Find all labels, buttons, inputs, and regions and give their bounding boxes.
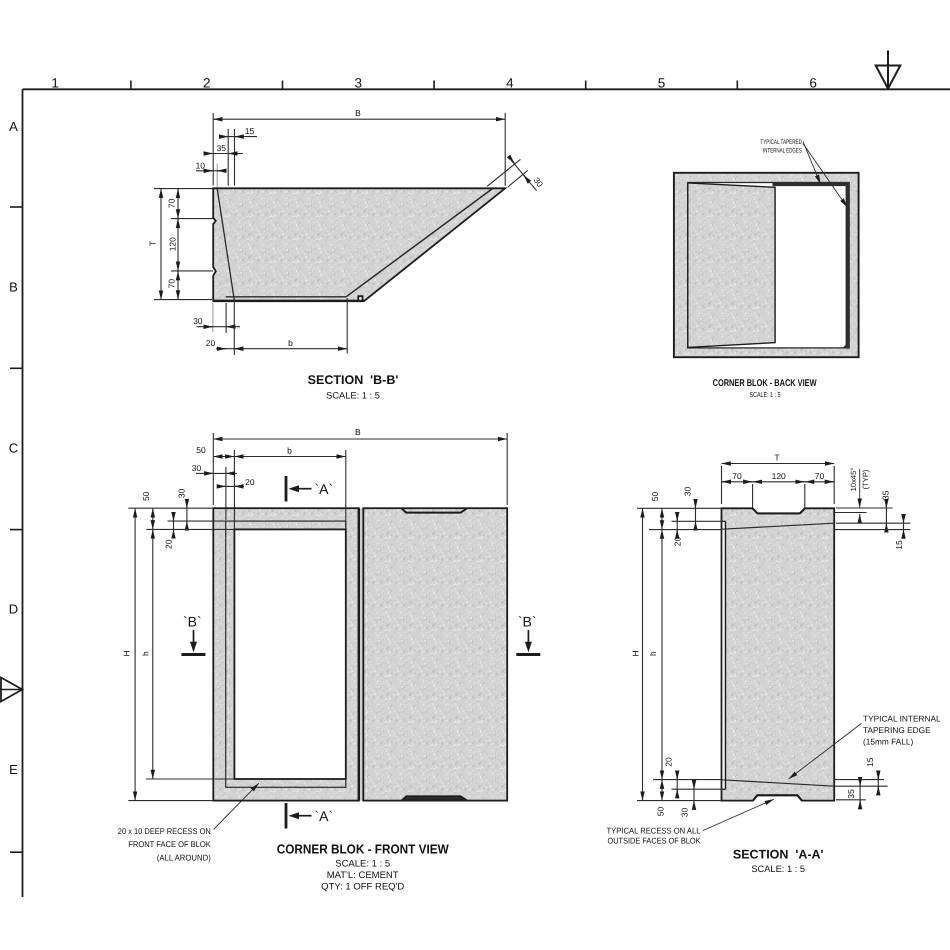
svg-text:TAPERING EDGE: TAPERING EDGE: [863, 725, 931, 735]
svg-text:MAT'L: CEMENT: MAT'L: CEMENT: [327, 870, 399, 881]
svg-text:10x45°: 10x45°: [849, 468, 858, 492]
svg-text:D: D: [9, 601, 18, 616]
svg-text:20: 20: [672, 537, 682, 547]
svg-text:120: 120: [167, 237, 177, 251]
svg-text:(TYP): (TYP): [861, 469, 870, 489]
svg-text:20: 20: [245, 477, 255, 487]
svg-text:TYPICAL RECESS ON ALL: TYPICAL RECESS ON ALL: [607, 826, 701, 836]
svg-text:1: 1: [51, 76, 59, 91]
svg-text:15: 15: [894, 540, 904, 550]
svg-text:5: 5: [658, 76, 666, 91]
svg-text:70: 70: [167, 198, 177, 208]
svg-text:70: 70: [732, 471, 742, 481]
svg-text:`A`: `A`: [315, 808, 334, 824]
svg-text:30: 30: [683, 487, 693, 497]
svg-text:15: 15: [245, 126, 255, 136]
svg-text:QTY: 1 OFF REQ'D: QTY: 1 OFF REQ'D: [321, 881, 404, 892]
svg-text:h: h: [141, 651, 151, 656]
svg-text:b: b: [287, 446, 292, 456]
svg-text:2: 2: [203, 76, 211, 91]
svg-text:50: 50: [141, 491, 151, 501]
svg-text:CORNER BLOK - FRONT VIEW: CORNER BLOK - FRONT VIEW: [277, 841, 450, 856]
svg-text:SCALE: 1 : 5: SCALE: 1 : 5: [750, 390, 781, 399]
svg-text:35: 35: [881, 490, 891, 500]
svg-text:OUTSIDE FACES OF BLOK: OUTSIDE FACES OF BLOK: [608, 836, 701, 846]
svg-text:6: 6: [809, 76, 817, 91]
svg-text:20: 20: [164, 539, 174, 549]
svg-text:70: 70: [167, 279, 177, 289]
svg-text:30: 30: [192, 463, 202, 473]
svg-text:3: 3: [355, 76, 363, 91]
svg-text:15: 15: [865, 757, 875, 767]
svg-text:20: 20: [664, 757, 674, 767]
svg-text:30: 30: [680, 808, 690, 818]
svg-text:h: h: [648, 651, 658, 656]
svg-text:SECTION 'B-B': SECTION 'B-B': [308, 373, 399, 387]
svg-text:A: A: [9, 119, 18, 134]
svg-text:(15mm FALL): (15mm FALL): [863, 737, 913, 747]
svg-text:TYPICAL INTERNAL: TYPICAL INTERNAL: [863, 714, 941, 724]
svg-text:35: 35: [846, 789, 856, 799]
svg-text:35: 35: [217, 143, 227, 153]
svg-text:20: 20: [206, 338, 216, 348]
svg-text:B: B: [9, 280, 18, 295]
svg-text:INTERNAL EDGES: INTERNAL EDGES: [763, 148, 802, 155]
svg-text:SECTION 'A-A': SECTION 'A-A': [733, 848, 824, 862]
svg-text:FRONT FACE OF BLOK: FRONT FACE OF BLOK: [128, 839, 211, 849]
svg-text:`A`: `A`: [315, 481, 334, 497]
svg-text:E: E: [9, 762, 18, 777]
svg-text:b: b: [288, 338, 293, 348]
svg-text:SCALE: 1 : 5: SCALE: 1 : 5: [335, 859, 390, 870]
svg-text:20 x 10 DEEP RECESS ON: 20 x 10 DEEP RECESS ON: [118, 826, 211, 836]
svg-text:T: T: [148, 241, 158, 246]
svg-text:C: C: [9, 441, 18, 456]
svg-text:30: 30: [193, 316, 203, 326]
svg-text:B: B: [355, 108, 361, 118]
svg-text:30: 30: [176, 488, 186, 498]
svg-text:50: 50: [655, 807, 665, 817]
svg-text:CORNER BLOK - BACK VIEW: CORNER BLOK - BACK VIEW: [713, 378, 818, 389]
svg-text:70: 70: [815, 471, 825, 481]
svg-text:SCALE: 1 : 5: SCALE: 1 : 5: [326, 391, 380, 401]
svg-text:`B`: `B`: [518, 614, 537, 630]
svg-text:B: B: [355, 427, 361, 437]
svg-text:4: 4: [506, 76, 514, 91]
svg-text:SCALE: 1 : 5: SCALE: 1 : 5: [751, 864, 805, 874]
svg-text:10: 10: [196, 160, 206, 170]
svg-text:H: H: [121, 651, 131, 657]
svg-text:T: T: [774, 453, 779, 463]
svg-text:50: 50: [196, 445, 206, 455]
svg-text:50: 50: [650, 492, 660, 502]
svg-text:TYPICAL TAPERED: TYPICAL TAPERED: [760, 139, 802, 146]
svg-text:120: 120: [772, 471, 786, 481]
svg-text:H: H: [631, 651, 641, 657]
svg-text:(ALL AROUND): (ALL AROUND): [157, 852, 211, 862]
svg-text:`B`: `B`: [183, 614, 202, 630]
